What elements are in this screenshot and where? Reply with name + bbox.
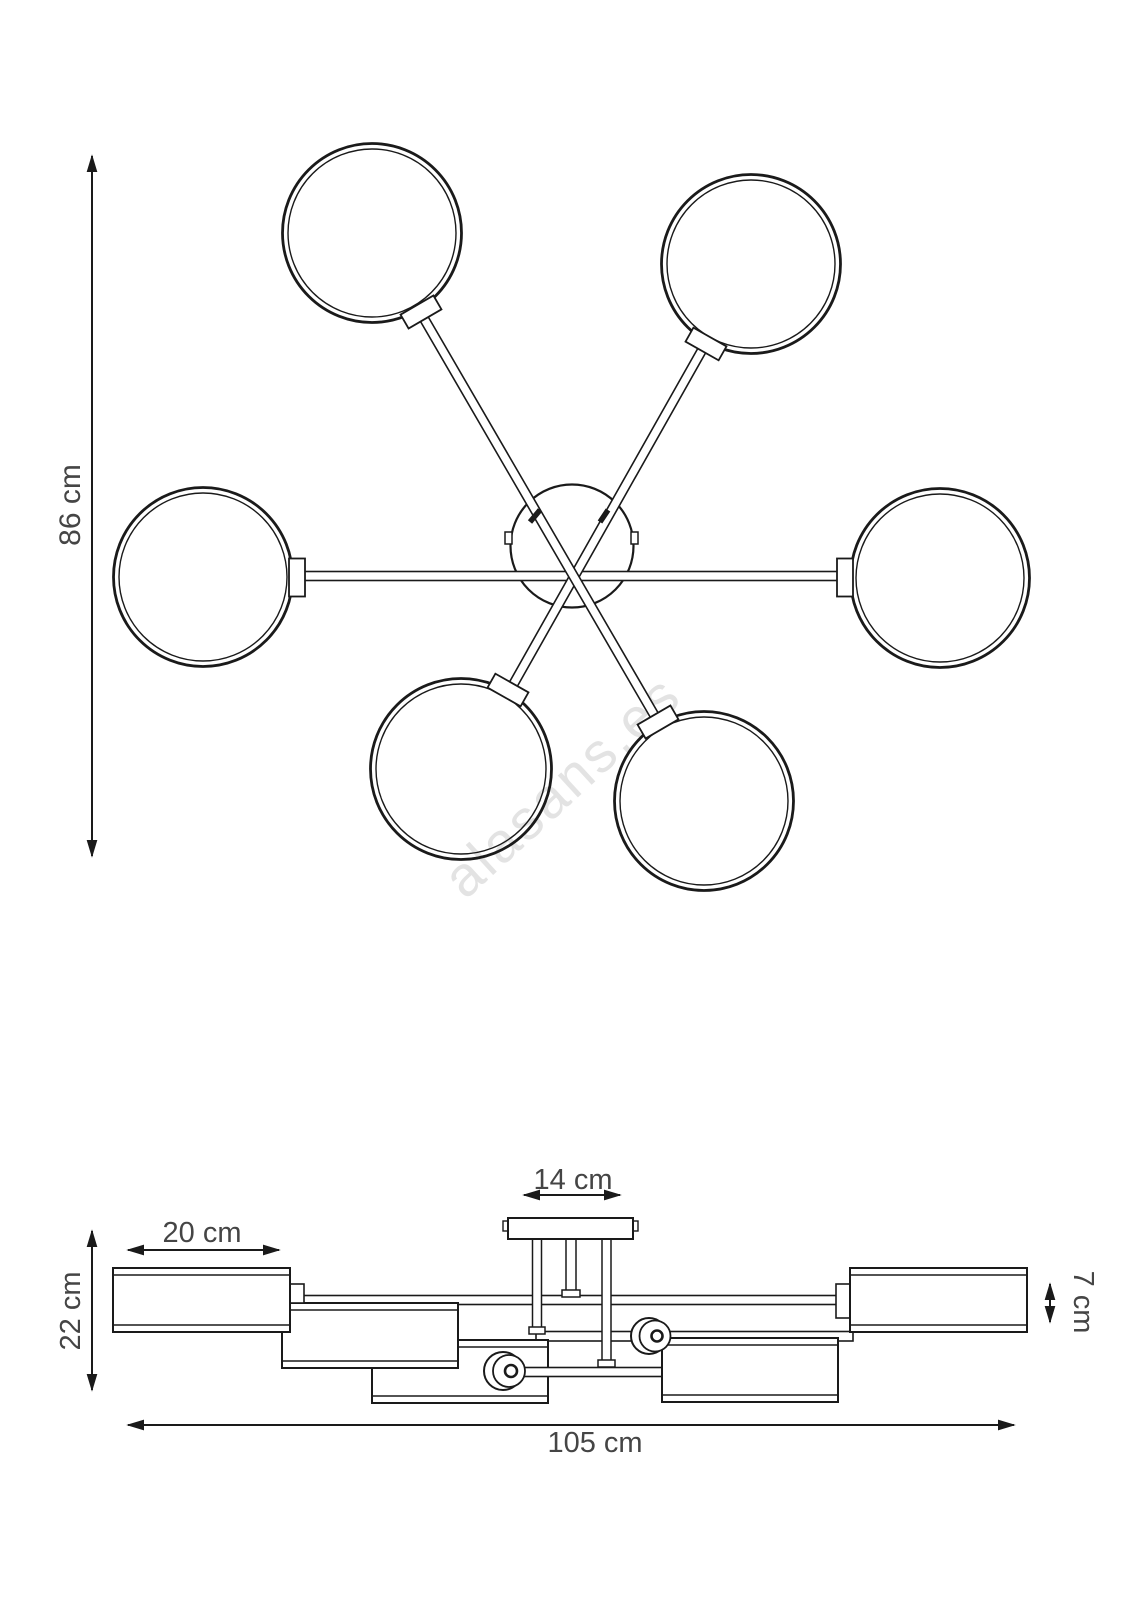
canopy-side-screw-left (505, 532, 512, 544)
dim-label-105cm: 105 cm (547, 1427, 642, 1459)
side-shade-mid-left (282, 1303, 458, 1368)
side-shade-right (836, 1268, 1027, 1332)
watermark-text: alasans.es (431, 662, 693, 910)
canopy-stem-left (533, 1239, 542, 1328)
dim-label-14cm: 14 cm (534, 1164, 613, 1196)
canopy-plate (508, 1218, 633, 1239)
side-shade-left (113, 1268, 304, 1332)
canopy-stem-right (602, 1239, 611, 1361)
dim-label-86cm: 86 cm (54, 464, 87, 546)
shade-circle-bottom-right (615, 712, 794, 891)
canopy-side-screw-right (631, 532, 638, 544)
canopy-stem-right-foot (598, 1360, 615, 1367)
shade-connector-left (289, 559, 305, 597)
dim-label-7cm: 7 cm (1067, 1271, 1099, 1334)
shade-circle-bottom-left (371, 679, 552, 860)
side-lower-rod (513, 1368, 664, 1377)
canopy-stem-middle (566, 1239, 576, 1291)
technical-drawing-page: alasans.es (0, 0, 1143, 1600)
ceiling-lamp-dimension-diagram: alasans.es (0, 0, 1143, 1600)
side-shade-bottom-right (662, 1338, 838, 1402)
shade-circle-right (851, 489, 1030, 668)
shade-circle-top-left (283, 144, 462, 323)
canopy-stem-left-foot (529, 1327, 545, 1334)
shade-connector-right (837, 559, 853, 597)
dim-label-20cm: 20 cm (163, 1217, 242, 1249)
side-view (113, 1218, 1027, 1403)
socket-end-right (631, 1318, 671, 1354)
dim-label-22cm: 22 cm (55, 1272, 87, 1351)
shade-circle-left (114, 488, 293, 667)
canopy-stem-middle-foot (562, 1290, 580, 1297)
socket-end-left (484, 1352, 525, 1390)
shade-connector-top-right (686, 328, 727, 361)
shade-circle-top-right (662, 175, 841, 354)
